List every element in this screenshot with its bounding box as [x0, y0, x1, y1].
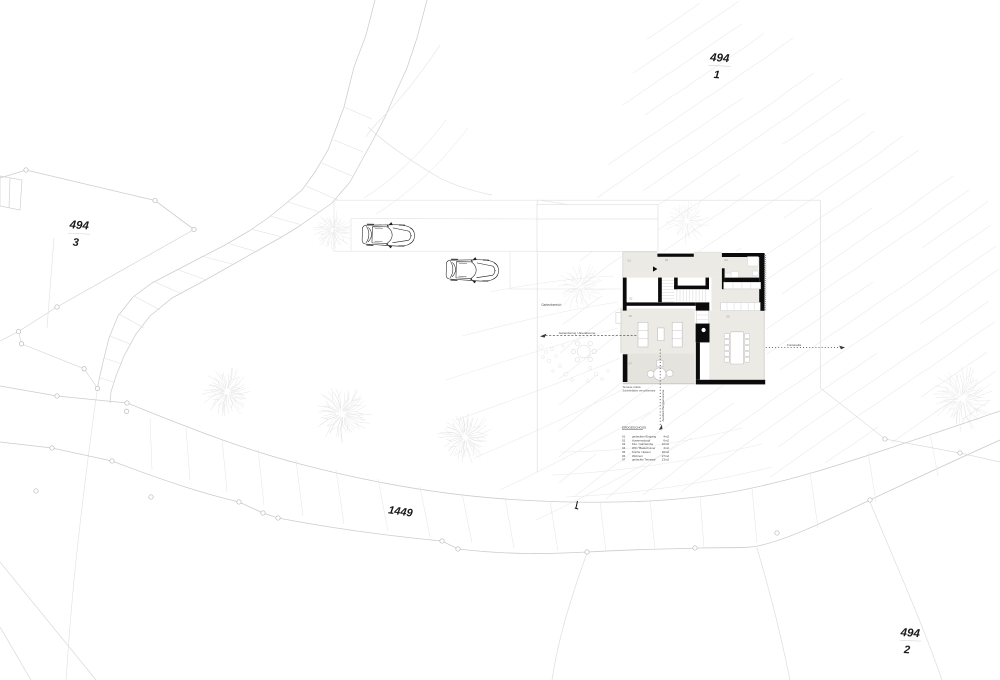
- svg-text:Gartenbezug / Abendsonne: Gartenbezug / Abendsonne: [559, 331, 596, 335]
- svg-text:494: 494: [709, 52, 731, 65]
- svg-text:494: 494: [899, 627, 921, 640]
- svg-text:05: 05: [726, 314, 730, 318]
- svg-text:Schiebeläden verschliessbar: Schiebeläden verschliessbar: [623, 389, 656, 393]
- svg-text:2: 2: [903, 644, 911, 656]
- svg-text:03: 03: [665, 258, 669, 262]
- svg-text:Gartenbereich: Gartenbereich: [541, 303, 561, 307]
- svg-text:ERDGESCHOSS: ERDGESCHOSS: [622, 425, 646, 429]
- svg-text:1: 1: [713, 69, 720, 81]
- svg-text:Fontanella: Fontanella: [787, 343, 801, 347]
- svg-text:04: 04: [724, 258, 728, 262]
- svg-text:gedeckte Terrasse: gedeckte Terrasse: [632, 458, 656, 462]
- svg-text:01: 01: [628, 258, 632, 262]
- svg-text:07: 07: [629, 362, 633, 366]
- svg-text:02: 02: [629, 297, 633, 301]
- svg-text:07: 07: [622, 458, 626, 462]
- svg-text:13m2: 13m2: [662, 458, 670, 462]
- svg-text:06: 06: [629, 314, 633, 318]
- svg-text:494: 494: [68, 219, 90, 232]
- svg-text:Ausblick Bergpanorama: Ausblick Bergpanorama: [661, 389, 665, 421]
- svg-text:3: 3: [72, 237, 79, 249]
